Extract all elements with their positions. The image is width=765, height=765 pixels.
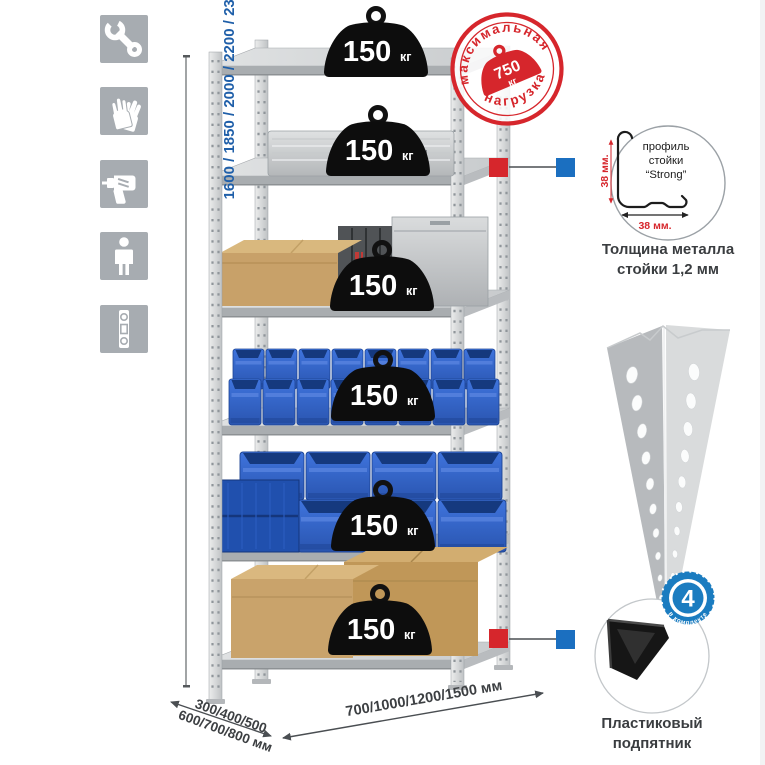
profile-label-2: стойки: [649, 155, 684, 167]
profile-caption-line2: стойки 1,2 мм: [588, 260, 748, 280]
blue-crate: [219, 480, 299, 552]
weight-badge-2: 150 кг: [326, 108, 430, 177]
load-value: 150: [347, 614, 395, 646]
profile-caption-line1: Толщина металла: [588, 240, 748, 260]
load-value: 150: [345, 135, 393, 167]
storage-bin: [433, 379, 465, 425]
plastic-foot-detail: 4 в комплекте: [595, 572, 715, 714]
callout-blue-marker: [556, 630, 575, 649]
load-unit: кг: [404, 628, 415, 642]
storage-bin: [372, 452, 436, 500]
load-value: 150: [349, 270, 397, 302]
callout-blue-marker: [556, 158, 575, 177]
dim-vertical-label: 38 мм.: [599, 154, 611, 187]
storage-bin: [297, 379, 329, 425]
foot-caption-line1: Пластиковый: [572, 714, 732, 734]
storage-bin: [306, 452, 370, 500]
foot-caption: Пластиковый подпятник: [572, 714, 732, 754]
profile-caption: Толщина металла стойки 1,2 мм: [588, 240, 748, 280]
weight-badge-1: 150 кг: [324, 9, 428, 78]
scene: 150 кг 150 кг 150 кг 150 кг 150 кг: [0, 0, 765, 765]
callout-red-marker: [489, 629, 508, 648]
height-dimension-line: [183, 55, 190, 688]
load-unit: кг: [400, 50, 411, 64]
callout-red-marker: [489, 158, 508, 177]
storage-bin: [263, 379, 295, 425]
load-unit: кг: [406, 284, 417, 298]
load-unit: кг: [407, 394, 418, 408]
height-dimension-label: 1600 / 1850 / 2000 / 2200 / 2350 / 2550 …: [221, 0, 239, 239]
page-right-border: [760, 0, 765, 765]
dim-horizontal-label: 38 мм.: [638, 220, 671, 232]
load-value: 150: [350, 380, 398, 412]
storage-bin: [229, 379, 261, 425]
profile-label-1: профиль: [643, 141, 690, 153]
callout-top: [489, 158, 575, 177]
post-profile-detail: 38 мм. 38 мм. профиль стойки “Strong”: [599, 126, 725, 240]
storage-bin: [467, 379, 499, 425]
profile-label-3: “Strong”: [646, 169, 687, 181]
storage-bin: [438, 500, 506, 552]
rack-post-back-right: [494, 46, 513, 670]
storage-bin: [438, 452, 502, 500]
load-unit: кг: [402, 149, 413, 163]
badge-quantity: 4: [681, 586, 695, 613]
load-value: 150: [350, 510, 398, 542]
load-value: 150: [343, 36, 391, 68]
foot-caption-line2: подпятник: [572, 734, 732, 754]
load-unit: кг: [407, 524, 418, 538]
product-infographic: 150 кг 150 кг 150 кг 150 кг 150 кг: [0, 0, 765, 765]
callout-bottom: [489, 629, 575, 649]
